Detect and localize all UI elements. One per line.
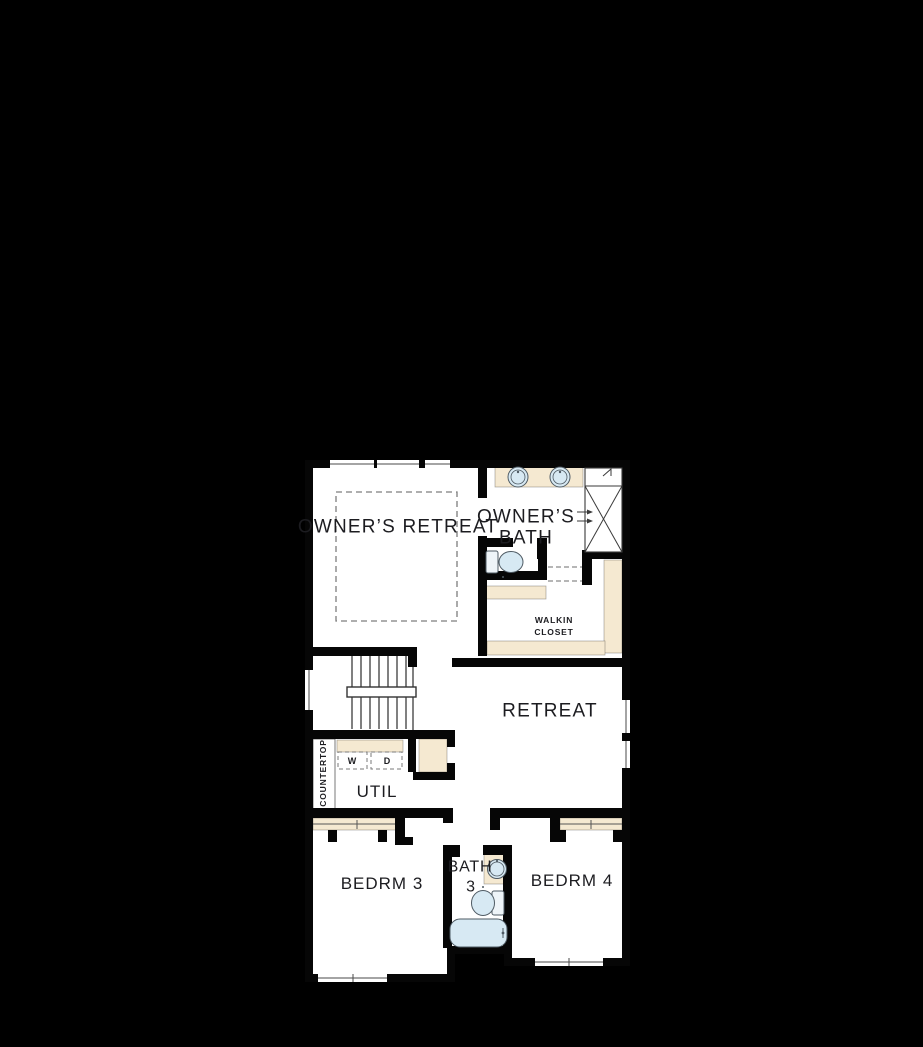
bath3-label-line1: BATH <box>448 859 493 876</box>
retreat-label: RETREAT <box>502 701 598 722</box>
wall-segment <box>443 808 453 823</box>
wall-segment <box>305 730 455 739</box>
washer-label: W <box>348 756 357 766</box>
floor-west <box>305 460 455 982</box>
floor-plan-page: OWNER’S RETREAT OWNER’S BATH WALKIN CLOS… <box>0 0 923 1047</box>
dryer-label: D <box>384 756 391 766</box>
walkin-closet-label-line1: WALKIN <box>535 615 573 625</box>
bedroom3-label: BEDRM 3 <box>341 874 424 893</box>
vanity-sink-icon <box>508 467 528 487</box>
wall-segment <box>490 808 500 830</box>
wall-segment <box>395 837 413 845</box>
walkin-closet-label-line2: CLOSET <box>534 627 573 637</box>
wall-segment <box>478 460 487 498</box>
countertop-label: COUNTERTOP <box>318 739 328 806</box>
wall-segment <box>452 658 630 667</box>
wall-segment <box>408 739 416 772</box>
wall-segment <box>305 808 453 818</box>
floor-plan: OWNER’S RETREAT OWNER’S BATH WALKIN CLOS… <box>0 0 923 1047</box>
wall-segment <box>582 550 592 585</box>
closet-shelf-top <box>486 586 546 599</box>
util-label: UTIL <box>357 782 398 801</box>
wall-segment <box>443 845 460 857</box>
wall-segment <box>305 460 313 982</box>
vanity-sink-icon <box>550 467 570 487</box>
closet-shelf-bottom <box>487 641 605 655</box>
wall-segment <box>613 830 622 842</box>
wall-segment <box>328 830 337 842</box>
linen-closet-shelf <box>419 739 447 772</box>
wall-segment <box>408 647 417 667</box>
owners-retreat-label: OWNER’S RETREAT <box>298 517 498 538</box>
wall-segment <box>447 730 455 747</box>
bedroom4-label: BEDRM 4 <box>531 871 614 890</box>
bath3-label-line2: 3 <box>466 879 476 896</box>
wall-segment <box>557 830 566 842</box>
owners-bath-label-line1: OWNER’S <box>477 507 575 528</box>
wall-segment <box>305 647 417 656</box>
wall-segment <box>413 772 455 780</box>
washer-dryer-shelf <box>337 740 403 752</box>
bathtub-icon <box>450 919 507 947</box>
owners-bath-label-line2: BATH <box>499 528 553 549</box>
wall-segment <box>378 830 387 842</box>
closet-shelf-right <box>604 560 622 653</box>
stair-handrail <box>347 687 416 697</box>
